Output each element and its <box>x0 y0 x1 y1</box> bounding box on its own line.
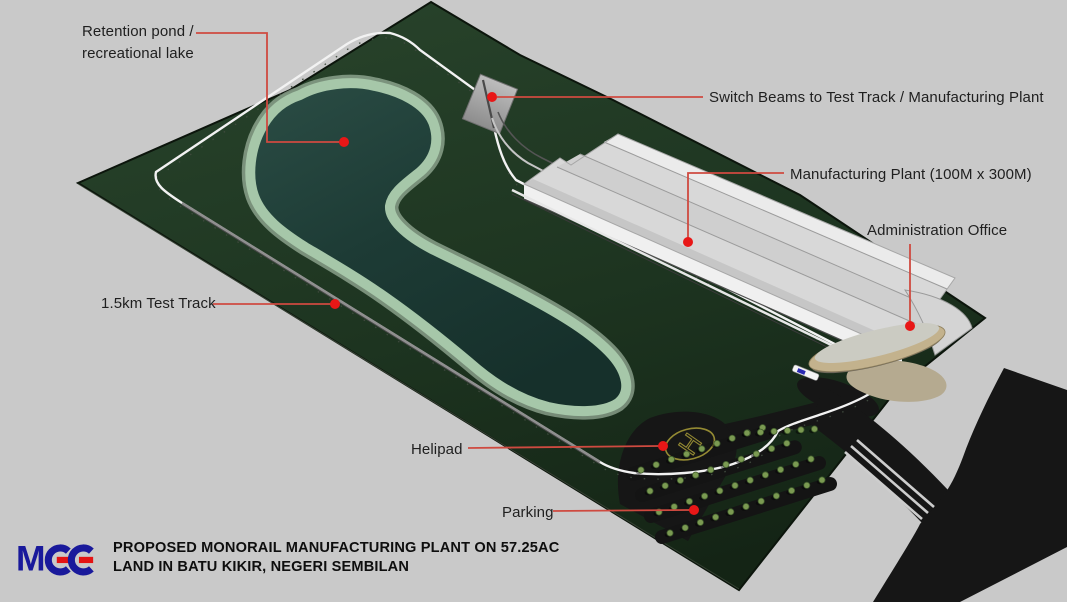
marker-dot-helipad <box>658 441 668 451</box>
marker-dot-parking <box>689 505 699 515</box>
marker-dot-manufacturing-plant <box>683 237 693 247</box>
leader-parking <box>553 510 690 511</box>
label-retention-pond-line1: Retention pond / <box>82 21 194 43</box>
marker-dot-test-track <box>330 299 340 309</box>
site-plan-rendering: H Retention pond / recreational lake <box>0 0 1067 602</box>
caption-line2: LAND IN BATU KIKIR, NEGERI SEMBILAN <box>113 558 559 577</box>
marker-dot-switch-beams <box>487 92 497 102</box>
label-retention-pond: Retention pond / recreational lake <box>82 21 194 65</box>
label-test-track: 1.5km Test Track <box>101 293 216 315</box>
mge-logo: M <box>16 539 100 581</box>
marker-dot-administration-office <box>905 321 915 331</box>
label-switch-beams: Switch Beams to Test Track / Manufacturi… <box>709 87 1044 109</box>
label-manufacturing-plant: Manufacturing Plant (100M x 300M) <box>790 164 1032 186</box>
label-parking: Parking <box>502 502 554 524</box>
marker-dot-retention-pond <box>339 137 349 147</box>
logo-letter-m: M <box>16 539 46 579</box>
caption: PROPOSED MONORAIL MANUFACTURING PLANT ON… <box>113 539 559 576</box>
logo-e-bar <box>79 557 93 563</box>
label-retention-pond-line2: recreational lake <box>82 43 194 65</box>
label-helipad: Helipad <box>411 439 463 461</box>
label-administration-office: Administration Office <box>867 220 1007 242</box>
caption-line1: PROPOSED MONORAIL MANUFACTURING PLANT ON… <box>113 539 559 558</box>
